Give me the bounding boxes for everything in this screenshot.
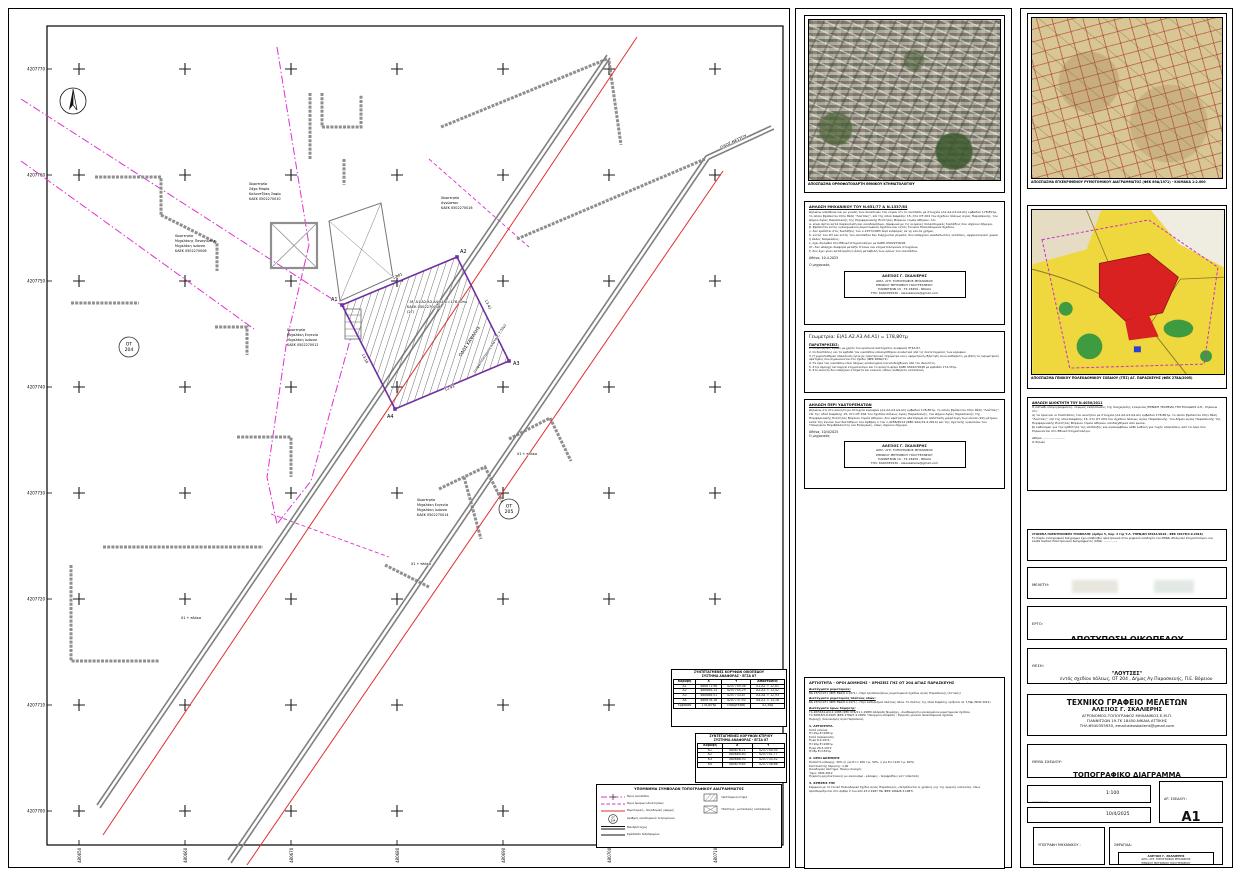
project-title: ΑΠΟΤΥΠΩΣΗ ΟΙΚΟΠΕΔΟΥ — [1032, 635, 1222, 640]
property-label-08: Ιδιοκτησία Μιχαλάκης Παναγιώτης Μιχαλάκη… — [175, 234, 216, 253]
svg-text:Α2: Α2 — [460, 249, 467, 255]
plot-coordinates-table: ΣΥΝΤΕΤΑΓΜΕΝΕΣ ΚΟΡΥΦΩΝ ΟΙΚΟΠΕΔΟΥ ΣΥΣΤΗΜΑ … — [671, 669, 787, 727]
svg-text:Μιχαλάκης Παναγιώτης: Μιχαλάκης Παναγιώτης — [175, 239, 216, 243]
svg-text:Χ1 + πλάκα: Χ1 + πλάκα — [411, 562, 432, 566]
signature-label: ΥΠΟΓΡΑΦΗ ΜΗΧΑΝΙΚΟΥ : — [1038, 843, 1081, 847]
legend-item: Υφιστάμενα κτίρια — [703, 793, 777, 802]
svg-text:ΟΤ: ΟΤ — [126, 342, 133, 348]
svg-text:4207730: 4207730 — [27, 491, 45, 496]
right-sheet: ΑΠΟΣΠΑΣΜΑ ΕΓΚΕΚΡΙΜΕΝΟΥ ΡΥΜΟΤΟΜΙΚΟΥ ΔΙΑΓΡ… — [1020, 8, 1233, 868]
legend: ΥΠΟΜΝΗΜΑ ΣΥΜΒΟΛΩΝ ΤΟΠΟΓΡΑΦΙΚΟΥ ΔΙΑΓΡΑΜΜΑ… — [596, 784, 782, 848]
existing-building — [329, 203, 393, 301]
legend-item: ΟΤ204 Αριθμός οικοδομικού τετραγώνου — [601, 814, 703, 824]
engineer-stamp: ΑΛΕΞΙΟΣ Γ. ΣΚΑΛΙΕΡΗΣ ΔΙΠΛ. ΑΓΡ. ΤΟΠΟΓΡΑΦ… — [1118, 852, 1214, 865]
orthophoto-image — [808, 19, 1001, 181]
geometry-title: Γεωμετρία: Ε(Α1.Α2.Α3.Α4.Α1) = 178,80τμ — [809, 335, 1000, 341]
svg-text:ΚΑΕΚ 0502270016: ΚΑΕΚ 0502270016 — [441, 206, 473, 210]
property-label-14: Ιδιοκτησία Μιχαλάκη Ευγενία Μιχαλάκη Ιωά… — [417, 498, 449, 517]
titleblock-office: ΤΕΧΝΙΚΟ ΓΡΑΦΕΙΟ ΜΕΛΕΤΩΝ ΑΛΕΞΙΟΣ Γ. ΣΚΑΛΙ… — [1027, 694, 1227, 736]
building-walls — [71, 59, 705, 661]
svg-text:4207720: 4207720 — [27, 597, 45, 602]
svg-text:Ιδιοκτησία: Ιδιοκτησία — [249, 182, 268, 186]
terms-section-body: ΒΔ 23/5/1971 (ΦΕΚ 89Δ/8.4.1971) - Περί τ… — [809, 692, 1000, 696]
block-number-symbol: ΟΤ204 — [601, 814, 625, 824]
legend-item: Μανδρότοιχος — [601, 824, 703, 831]
terms-section-body: ΥΑ 48/5634-Δ/9.2.1988 (ΦΕΚ 97Δ/11.1.1988… — [809, 711, 1000, 722]
terms-section-body: Ποσοστό κάλυψης: 30% (ή για Ε<= 200 τ.μ.… — [809, 761, 1000, 779]
svg-text:Α4: Α4 — [387, 414, 394, 420]
svg-text:204: 204 — [125, 347, 134, 353]
titleblock-stamp: ΣΦΡΑΓΙΔΑ: ΑΛΕΞΙΟΣ Γ. ΣΚΑΛΙΕΡΗΣ ΔΙΠΛ. ΑΓΡ… — [1109, 827, 1223, 865]
svg-text:Ιδιοκτησία: Ιδιοκτησία — [287, 328, 306, 332]
dimension-labels: 12,81 13,42 12,93 13,18 — [361, 272, 492, 392]
declaration-date: Αθήνα, 10.4.2025 — [809, 256, 1000, 260]
parcel-boundaries — [21, 47, 357, 524]
svg-text:Χ1 + πλάκα: Χ1 + πλάκα — [517, 452, 538, 456]
notes-body: 1. Οι μετρήσεις έγιναν με χρήση του κρατ… — [809, 347, 1000, 372]
north-arrow-icon — [60, 88, 86, 114]
terms-title: ΑΡΤΙΟΤΗΤΑ - ΟΡΟΙ ΔΟΜΗΣΗΣ - ΧΡΗΣΕΙΣ ΓΗΣ Ο… — [809, 681, 1000, 686]
svg-text:Σάχα Μαρία: Σάχα Μαρία — [249, 187, 270, 191]
axis-ticks — [47, 69, 715, 845]
svg-text:ΚΑΕΚ 0502270018: ΚΑΕΚ 0502270018 — [407, 305, 441, 309]
plot-boundary-symbol — [601, 793, 625, 800]
shed-with-x — [271, 223, 317, 268]
titleblock-location: ΘΕΣΗ: "ΛΟΥΤΣΕΣ" εντός σχεδίου πόλεως, ΟΤ… — [1027, 648, 1227, 684]
svg-text:Καλαντζάκη Σοφία: Καλαντζάκη Σοφία — [249, 192, 282, 196]
svg-text:480690: 480690 — [501, 847, 506, 863]
zoning-extract-panel: ΑΠΟΣΠΑΣΜΑ ΕΓΚΕΚΡΙΜΕΝΟΥ ΡΥΜΟΤΟΜΙΚΟΥ ΔΙΑΓΡ… — [1027, 13, 1227, 189]
legend-item: Υπόστεγα - μεταλλικές κατασκευές — [703, 805, 777, 814]
shed-symbol — [703, 805, 719, 814]
table-row: Κ4480679.854207738.66 — [698, 763, 785, 768]
submission-body: Το παρόν τοπογραφικό διάγραμμα έχει υποβ… — [1032, 537, 1222, 544]
svg-text:ΚΑΕΚ 0502270014: ΚΑΕΚ 0502270014 — [417, 513, 449, 517]
building-line-symbol — [601, 807, 625, 814]
number-label: ΑΡ. ΣΧΕΔΙΟΥ : — [1164, 797, 1187, 801]
topographic-sheet: 4207770 4207760 4207750 4207740 4207730 … — [0, 0, 1239, 876]
engineer-stamp: ΑΛΕΞΙΟΣ Γ. ΣΚΑΛΙΕΡΗΣ ΔΙΠΛ. ΑΓΡ. ΤΟΠΟΓΡΑΦ… — [844, 441, 966, 468]
titleblock-number: ΑΡ. ΣΧΕΔΙΟΥ : A1 — [1159, 781, 1223, 823]
svg-text:205: 205 — [505, 509, 514, 515]
svg-text:480670: 480670 — [289, 847, 294, 863]
block-number-ot204: ΟΤ 204 — [119, 337, 139, 357]
client-name-redacted — [1072, 580, 1118, 593]
electronic-submission: ΣΤΟΙΧΕΙΑ ΗΛΕΚΤΡΟΝΙΚΗΣ ΥΠΟΒΟΛΗΣ (άρθρο 5,… — [1027, 529, 1227, 561]
declaration-body: Ο κάτωθι υπογεγραμμένος, νόμιμος εκπρόσω… — [1032, 406, 1222, 434]
declaration-signer: Ο δηλών — [1032, 441, 1222, 445]
drawing-subject: ΤΟΠΟΓΡΑΦΙΚΟ ΔΙΑΓΡΑΜΜΑ — [1032, 771, 1222, 778]
building-lines-red — [103, 37, 723, 865]
scale-value: 1:100 — [1106, 791, 1119, 796]
wall-symbol — [601, 824, 625, 831]
building-terms: ΑΡΤΙΟΤΗΤΑ - ΟΡΟΙ ΔΟΜΗΣΗΣ - ΧΡΗΣΕΙΣ ΓΗΣ Ο… — [804, 677, 1005, 869]
svg-text:Μιχαλάκη Ιωάννα: Μιχαλάκη Ιωάννα — [417, 508, 448, 512]
titleblock-client: ΜΕΛΕΤΗ: — [1027, 567, 1227, 599]
declaration-signer: Ο μηχανικός — [809, 434, 1000, 438]
engineer-stamp: ΑΛΕΞΙΟΣ Γ. ΣΚΑΛΙΕΡΗΣ ΔΙΠΛ. ΑΓΡ. ΤΟΠΟΓΡΑΦ… — [844, 271, 966, 298]
svg-text:Ιδιοκτησία: Ιδιοκτησία — [417, 498, 436, 502]
svg-text:(2Γ): (2Γ) — [407, 310, 415, 314]
owner-declaration: ΔΗΛΩΣΗ ΙΔΙΟΚΤΗΤΗ ΤΟΥ Ν.4030/2011 Ο κάτωθ… — [1027, 397, 1227, 491]
block-number-ot205: ΟΤ 205 — [499, 499, 519, 519]
road-edges — [97, 55, 774, 863]
svg-text:4207740: 4207740 — [27, 385, 45, 390]
svg-text:Μιχαλάκη Ιωάννα: Μιχαλάκη Ιωάννα — [175, 244, 206, 248]
subject-label: ΘΕΜΑ ΣΧΕΔΙΟΥ: — [1032, 759, 1062, 764]
x-axis-labels: 480650 480660 480670 480680 480690 48070… — [77, 847, 718, 863]
titleblock-date: ΗΜΕΡΟΜΗΝΙΑ 10/4/2025 — [1027, 807, 1151, 823]
drawing-number: A1 — [1164, 810, 1218, 823]
date-value: 10/4/2025 — [1106, 812, 1130, 817]
declaration-title: ΔΗΛΩΣΗ ΜΗΧΑΝΙΚΟΥ ΤΟΥ Ν.651/77 & Ν.1337/8… — [809, 205, 1000, 210]
svg-text:ΚΑΕΚ 0502270010: ΚΑΕΚ 0502270010 — [249, 197, 281, 201]
svg-text:4207750: 4207750 — [27, 279, 45, 284]
svg-text:4207710: 4207710 — [27, 703, 45, 708]
svg-text:4207770: 4207770 — [27, 67, 45, 72]
middle-sheet: ΑΠΟΣΠΑΣΜΑ ΟΡΘΟΦΩΤΟΧΑΡΤΗ ΕΘΝΙΚΟΥ ΚΤΗΜΑΤΟΛ… — [795, 8, 1012, 868]
terms-section-body: ΒΔ 23/5/1971 (ΦΕΚ 89Δ/8.4.1971) - Περί κ… — [809, 701, 1000, 705]
svg-text:Χ1 + πλάκα: Χ1 + πλάκα — [181, 616, 202, 620]
level-labels: Χ1 + πλάκα Χ1 + πλάκα Χ1 + πλάκα — [181, 452, 538, 620]
svg-text:480700: 480700 — [607, 847, 612, 863]
svg-text:13,42: 13,42 — [484, 299, 492, 310]
geometry-notes: Γεωμετρία: Ε(Α1.Α2.Α3.Α4.Α1) = 178,80τμ … — [804, 331, 1005, 393]
legend-item: Όρια όμορων ιδιοκτησιών — [601, 800, 703, 807]
legend-item: Κράσπεδο πεζοδρομίου — [601, 831, 703, 838]
project-label: ΕΡΓΟ: — [1032, 621, 1043, 626]
svg-text:Γ.Μ. Α1.Α2.Α3.Α4.Α1 Ε=178,80τμ: Γ.Μ. Α1.Α2.Α3.Α4.Α1 Ε=178,80τμ — [407, 300, 468, 304]
office-contact: ΤΗΛ:6940355930, email:alexskalieris@gmai… — [1032, 723, 1222, 728]
svg-text:ΚΑΕΚ 0502270012: ΚΑΕΚ 0502270012 — [287, 343, 319, 347]
svg-text:Μιχαλάκη Ιωάννα: Μιχαλάκη Ιωάννα — [287, 338, 318, 342]
zoning-extract-image — [1031, 17, 1223, 179]
titleblock-scale: ΚΛΙΜΑΚΑ: 1:100 — [1027, 785, 1151, 803]
stamp-label: ΣΦΡΑΓΙΔΑ: — [1114, 843, 1132, 847]
zoning-extract-caption: ΑΠΟΣΠΑΣΜΑ ΕΓΚΕΚΡΙΜΕΝΟΥ ΡΥΜΟΤΟΜΙΚΟΥ ΔΙΑΓΡ… — [1031, 181, 1223, 185]
declaration-signer: Ο μηχανικός — [809, 263, 1000, 267]
svg-text:Ιδιοκτησία: Ιδιοκτησία — [441, 196, 460, 200]
gps-map-image — [1031, 209, 1225, 375]
svg-text:12,93: 12,93 — [444, 384, 455, 392]
table-footer-row: Εμβαδόν178,80τμΠερίμετρος52,34μ — [674, 704, 785, 709]
svg-text:480710: 480710 — [713, 847, 718, 863]
svg-text:ΟΤ: ΟΤ — [506, 504, 513, 510]
titleblock-signature: ΥΠΟΓΡΑΦΗ ΜΗΧΑΝΙΚΟΥ : — [1033, 827, 1105, 865]
declaration-body: Δηλώνω υπεύθυνα και με γνώση των συνεπει… — [809, 211, 1000, 254]
terms-section-body: Κατά κανόνα: Π=15μ Ε=400τμ Κατά παρέκκλι… — [809, 729, 1000, 754]
client-name-redacted — [1154, 580, 1194, 593]
orthophoto-panel: ΑΠΟΣΠΑΣΜΑ ΟΡΘΟΦΩΤΟΧΑΡΤΗ ΕΘΝΙΚΟΥ ΚΤΗΜΑΤΟΛ… — [804, 15, 1005, 193]
titleblock-subject: ΘΕΜΑ ΣΧΕΔΙΟΥ: ΤΟΠΟΓΡΑΦΙΚΟ ΔΙΑΓΡΑΜΜΑ — [1027, 744, 1227, 778]
watercourse-declaration: ΔΗΛΩΣΗ ΠΕΡΙ ΥΔΑΤΟΡΕΜΑΤΩΝ Δηλώνω ότι στο … — [804, 399, 1005, 489]
stairs-symbol — [345, 309, 361, 339]
engineer-declaration: ΔΗΛΩΣΗ ΜΗΧΑΝΙΚΟΥ ΤΟΥ Ν.651/77 & Ν.1337/8… — [804, 201, 1005, 325]
svg-text:480660: 480660 — [183, 847, 188, 863]
date-label: ΗΜΕΡΟΜΗΝΙΑ — [1032, 822, 1059, 823]
plan-drawing: 4207770 4207760 4207750 4207740 4207730 … — [9, 9, 787, 865]
svg-text:204: 204 — [611, 820, 616, 823]
curb-symbol — [601, 831, 625, 838]
declaration-title: ΔΗΛΩΣΗ ΠΕΡΙ ΥΔΑΤΟΡΕΜΑΤΩΝ — [809, 403, 1000, 408]
svg-text:4207760: 4207760 — [27, 173, 45, 178]
gps-panel: ΑΠΟΣΠΑΣΜΑ ΓΕΝΙΚΟΥ ΠΟΛΕΟΔΟΜΙΚΟΥ ΣΧΕΔΙΟΥ (… — [1027, 205, 1227, 389]
titleblock-project: ΕΡΓΟ: ΑΠΟΤΥΠΩΣΗ ΟΙΚΟΠΕΔΟΥ — [1027, 606, 1227, 640]
location-detail: εντός σχεδίου πόλεως, ΟΤ 204 , Δήμος Αγ.… — [1060, 677, 1222, 684]
scale-label: ΚΛΙΜΑΚΑ: — [1032, 800, 1050, 803]
property-label-12: Ιδιοκτησία Μιχαλάκη Ευγενία Μιχαλάκη Ιωά… — [287, 328, 319, 347]
declaration-body: Δηλώνω ότι στο ακίνητο με στοιχεία κορυφ… — [809, 409, 1000, 429]
y-axis-labels: 4207770 4207760 4207750 4207740 4207730 … — [27, 67, 45, 814]
legend-item: Όρια οικοπέδου — [601, 793, 703, 800]
svg-text:Μιχαλάκη Ευγενία: Μιχαλάκη Ευγενία — [417, 503, 449, 507]
svg-text:ΚΑΕΚ 0502270008: ΚΑΕΚ 0502270008 — [175, 249, 207, 253]
neighbor-boundary-symbol — [601, 800, 625, 807]
svg-text:12,81: 12,81 — [392, 272, 403, 280]
svg-text:Α1: Α1 — [331, 297, 338, 303]
client-label: ΜΕΛΕΤΗ: — [1032, 582, 1049, 587]
plot-hatch — [227, 205, 595, 457]
office-name: ΤΕΧΝΙΚΟ ΓΡΑΦΕΙΟ ΜΕΛΕΤΩΝ — [1032, 698, 1222, 707]
location-label: ΘΕΣΗ: — [1032, 663, 1044, 668]
building-coordinates-table: ΣΥΝΤΕΤΑΓΜΕΝΕΣ ΚΟΡΥΦΩΝ ΚΤΙΡΙΟΥ ΣΥΣΤΗΜΑ ΑΝ… — [695, 733, 787, 783]
plan-sheet: 4207770 4207760 4207750 4207740 4207730 … — [8, 8, 790, 868]
legend-item: Ρυμοτομική - Οικοδομική γραμμή — [601, 807, 703, 814]
svg-text:480650: 480650 — [77, 847, 82, 863]
svg-text:Ιδιοκτησία: Ιδιοκτησία — [175, 234, 194, 238]
orthophoto-caption: ΑΠΟΣΠΑΣΜΑ ΟΡΘΟΦΩΤΟΧΑΡΤΗ ΕΘΝΙΚΟΥ ΚΤΗΜΑΤΟΛ… — [808, 183, 1001, 187]
svg-text:4207700: 4207700 — [27, 809, 45, 814]
svg-text:480680: 480680 — [395, 847, 400, 863]
legend-title: ΥΠΟΜΝΗΜΑ ΣΥΜΒΟΛΩΝ ΤΟΠΟΓΡΑΦΙΚΟΥ ΔΙΑΓΡΑΜΜΑ… — [601, 787, 777, 791]
svg-text:Μιχαλάκη Ευγενία: Μιχαλάκη Ευγενία — [287, 333, 319, 337]
terms-section-body: Σύμφωνα με το Γενικό Πολεοδομικό Σχέδιο … — [809, 786, 1000, 793]
gps-caption: ΑΠΟΣΠΑΣΜΑ ΓΕΝΙΚΟΥ ΠΟΛΕΟΔΟΜΙΚΟΥ ΣΧΕΔΙΟΥ (… — [1031, 377, 1223, 381]
existing-building-symbol — [703, 793, 719, 802]
road-labels: ΟΔΟΣ ΚΑΨΑΛΗΣ (ασφαλτόστρωτη πλάτους 7,50… — [458, 133, 748, 374]
property-label-10: Ιδιοκτησία Σάχα Μαρία Καλαντζάκη Σοφία Κ… — [249, 182, 282, 201]
svg-text:Αγνώστου: Αγνώστου — [441, 201, 458, 205]
property-label-16: Ιδιοκτησία Αγνώστου ΚΑΕΚ 0502270016 — [441, 196, 473, 210]
svg-text:Α3: Α3 — [513, 361, 520, 367]
